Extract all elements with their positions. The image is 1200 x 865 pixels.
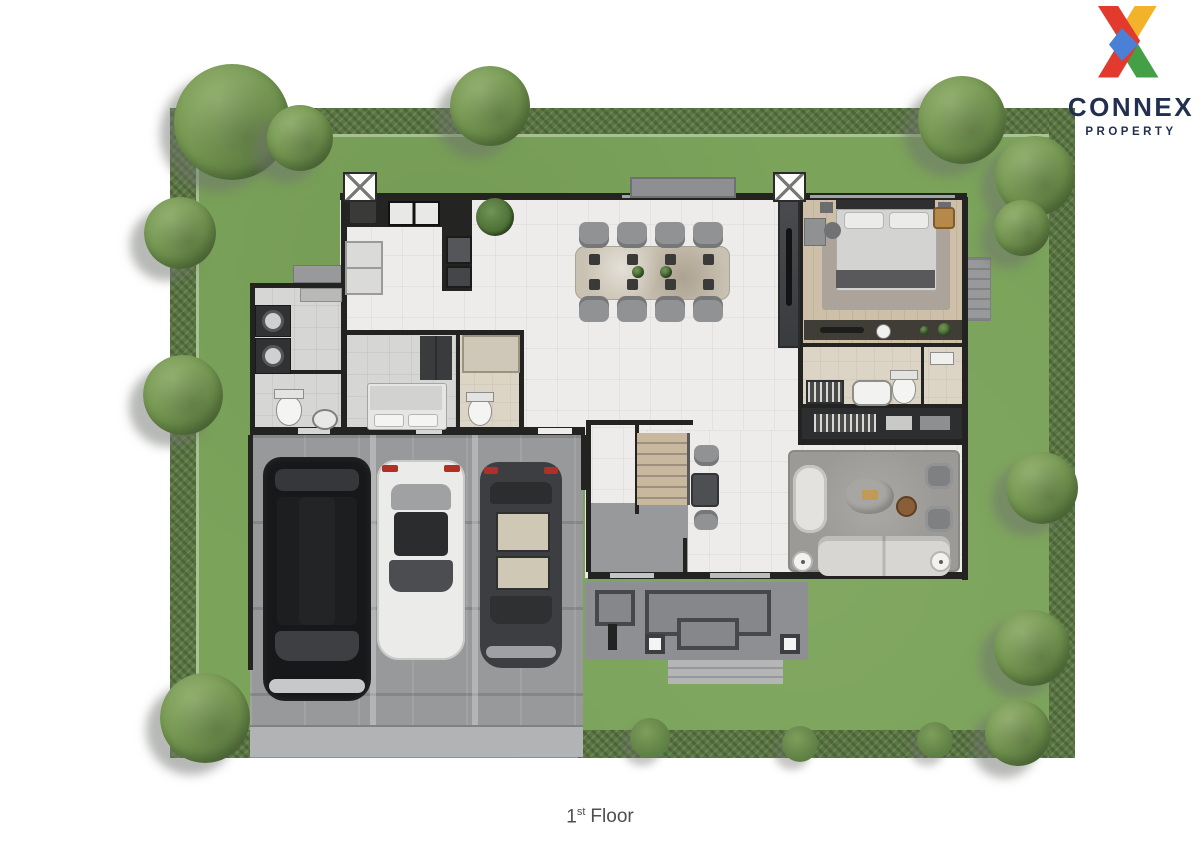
pillow <box>408 414 438 427</box>
place-setting <box>627 279 638 290</box>
car-roof <box>394 512 448 556</box>
door-gap <box>538 428 572 434</box>
wall-bedroom-bottom <box>798 439 968 445</box>
tree <box>143 355 223 435</box>
armchair <box>925 463 953 489</box>
wall-stair-left <box>586 420 591 572</box>
bush <box>782 726 818 762</box>
wash-basin <box>312 409 338 430</box>
caption-word: Floor <box>590 806 633 827</box>
bed <box>836 200 935 304</box>
porch-panel <box>595 590 635 626</box>
toilet-tank <box>274 389 304 399</box>
dining-chair <box>579 222 609 248</box>
coffee-table <box>846 478 894 514</box>
ac-unit-icon <box>773 172 806 202</box>
tree <box>450 66 530 146</box>
gold-tray <box>862 490 878 500</box>
kitchen-sink <box>388 201 440 226</box>
toilet-tank <box>890 370 918 380</box>
folded-clothes <box>920 416 950 430</box>
car-white-sedan <box>377 460 465 660</box>
porch-panel <box>677 618 739 650</box>
floor-lamp <box>930 551 951 572</box>
shower-tray <box>462 335 520 373</box>
car-windshield <box>275 631 359 661</box>
toilet-tank <box>466 392 494 402</box>
tv-partition-cabinet <box>778 200 800 348</box>
kitchen-hob <box>350 201 376 223</box>
headboard <box>836 200 935 209</box>
armchair <box>925 506 953 532</box>
car-gray-suv <box>480 462 562 668</box>
wardrobe <box>802 408 962 439</box>
toilet <box>276 396 302 426</box>
tree <box>144 197 216 269</box>
staircase <box>637 433 690 505</box>
bathtub <box>852 380 892 406</box>
chaise-lounge <box>793 465 827 533</box>
fridge <box>345 241 383 295</box>
maid-wardrobe <box>420 336 452 380</box>
floor-lamp <box>792 551 813 572</box>
nightstand <box>820 202 833 213</box>
toilet <box>468 398 492 426</box>
window-bedroom <box>810 195 955 198</box>
table-centerpiece <box>632 266 644 278</box>
dining-chair <box>693 296 723 322</box>
tree <box>994 610 1070 686</box>
floor-caption: 1stFloor <box>0 806 1200 828</box>
dining-chair <box>617 296 647 322</box>
sliding-door-glass <box>610 573 654 578</box>
car-front-bumper <box>269 679 365 693</box>
entrance-porch <box>585 582 808 660</box>
driveway-apron <box>250 725 583 757</box>
kitchen-drawer <box>446 266 472 288</box>
pillow <box>844 212 884 229</box>
pillow <box>889 212 929 229</box>
ac-unit-icon <box>343 172 377 202</box>
place-setting <box>589 279 600 290</box>
bedroom-desk <box>804 218 826 246</box>
garage-bay-divider <box>472 435 478 725</box>
brand-name: CONNEX <box>1062 92 1200 123</box>
place-setting <box>703 279 714 290</box>
car-sunroof <box>496 512 550 552</box>
dining-chair <box>617 222 647 248</box>
bistro-chair <box>694 510 718 530</box>
maid-blanket <box>370 386 442 410</box>
window-planter <box>630 177 736 198</box>
garden-plot <box>170 108 1075 758</box>
wall-garage-left <box>248 435 253 670</box>
table-centerpiece <box>660 266 672 278</box>
car-taillight <box>484 467 498 474</box>
porch-column <box>780 634 800 654</box>
caption-number: 1 <box>566 806 577 827</box>
entrance-steps <box>668 660 783 684</box>
gold-pouf <box>933 207 955 229</box>
car-black-suv <box>263 457 371 701</box>
wall-stair-top <box>586 420 693 425</box>
bath-closet-shelves <box>806 380 844 404</box>
brand-tagline: PROPERTY <box>1062 126 1200 138</box>
place-setting <box>703 254 714 265</box>
tv-screen <box>786 228 792 306</box>
porch-column <box>645 634 665 654</box>
stair-closet-floor <box>592 427 637 515</box>
car-windshield <box>490 596 552 624</box>
washing-machine <box>255 305 291 337</box>
caption-ordinal: st <box>577 806 586 818</box>
connex-x-icon <box>1085 6 1177 94</box>
bistro-table <box>691 473 719 507</box>
bush <box>917 722 953 758</box>
bistro-chair <box>694 445 719 466</box>
car-windshield <box>389 560 453 592</box>
sliding-door-glass <box>710 573 770 578</box>
car-sunroof <box>496 556 550 590</box>
tree <box>994 200 1050 256</box>
car-taillight <box>444 465 460 472</box>
place-setting <box>589 254 600 265</box>
shower-sink <box>930 352 954 365</box>
kitchen-oven <box>446 236 472 264</box>
hanging-clothes <box>814 414 876 432</box>
tree <box>918 76 1006 164</box>
place-setting <box>665 279 676 290</box>
wall-left-main <box>341 193 347 435</box>
vanity-plant <box>938 323 951 336</box>
side-table <box>896 496 917 517</box>
brand-logo: CONNEX PROPERTY <box>1062 6 1200 138</box>
dining-chair <box>655 296 685 322</box>
laundry-counter <box>300 288 342 302</box>
vanity-counter <box>804 320 962 340</box>
dining-chair <box>579 296 609 322</box>
side-stoop <box>293 265 343 283</box>
place-setting <box>665 254 676 265</box>
pillow <box>374 414 404 427</box>
dining-chair <box>655 222 685 248</box>
toilet <box>892 376 916 404</box>
indoor-plant <box>476 198 514 236</box>
tree <box>1006 452 1078 524</box>
car-taillight <box>382 465 398 472</box>
bed-throw <box>836 270 935 288</box>
front-door <box>608 624 617 650</box>
car-taillight <box>544 467 558 474</box>
maid-bed <box>367 383 447 430</box>
wall-bath-top <box>802 343 962 347</box>
tree <box>267 105 333 171</box>
tree <box>985 700 1051 766</box>
floor-plan-page: CONNEX PROPERTY 1stFloor <box>0 0 1200 865</box>
wall-maid-divider <box>456 330 460 430</box>
wall-bedroom-right <box>962 197 968 580</box>
vanity-tray <box>820 327 864 333</box>
place-setting <box>627 254 638 265</box>
vanity-sink <box>876 324 891 339</box>
folded-clothes <box>886 416 912 430</box>
car-rear-glass <box>275 469 359 491</box>
car-rear-glass <box>490 482 552 504</box>
dining-chair <box>693 222 723 248</box>
wall-living-left-stub <box>683 538 687 579</box>
wall-bath-divider <box>921 347 924 404</box>
desk-chair <box>824 222 841 239</box>
vanity-plant <box>920 326 929 335</box>
washing-machine <box>255 338 291 374</box>
tree <box>160 673 250 763</box>
car-front-bumper <box>486 646 556 658</box>
bush <box>630 718 670 758</box>
car-roof <box>277 497 357 625</box>
car-rear-glass <box>391 484 451 510</box>
